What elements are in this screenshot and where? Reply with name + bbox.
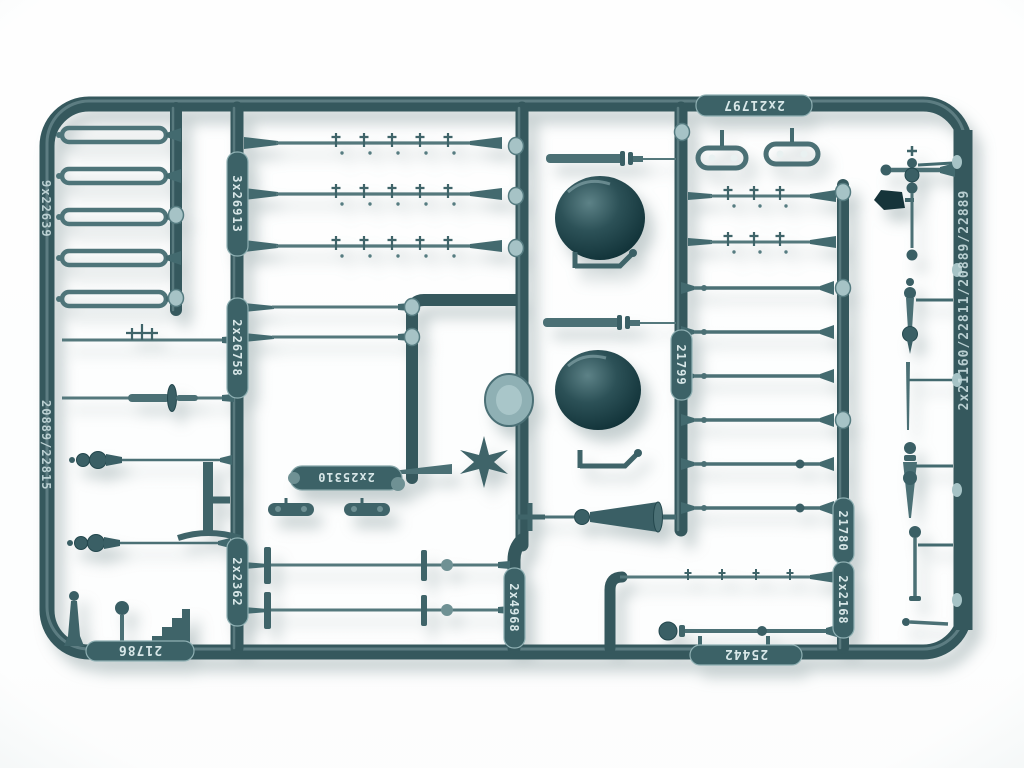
label-bottom-right: 25442 — [690, 645, 802, 665]
clip-part — [344, 498, 390, 516]
label-left-rail-upper: 9x22639 — [39, 180, 53, 238]
part-number-label: 21780 — [836, 510, 850, 551]
finial-part — [67, 535, 230, 552]
lamp-shade-disc — [555, 350, 641, 430]
label-mid-runner: 21799 — [671, 330, 692, 400]
rail-boss — [952, 483, 962, 497]
label-right-rail: 2x21160/22811/20889/22889 — [957, 190, 972, 411]
right-center-parts — [620, 186, 840, 649]
center-parts: 2x25310 — [268, 151, 676, 532]
label-bottom-left: 21786 — [86, 641, 194, 661]
label-top-rail: 2x21797 — [696, 95, 812, 116]
right-column-parts — [902, 146, 953, 626]
part-number-label: 21799 — [674, 344, 688, 385]
crossarm-part — [244, 236, 502, 258]
part-number-label: 25442 — [724, 646, 768, 661]
part-number-label: 2x2362 — [230, 557, 244, 606]
part-number-label: 2x2168 — [836, 575, 850, 624]
ball-stand-part — [115, 601, 129, 647]
loop-parts — [56, 128, 181, 306]
pole-part — [681, 457, 834, 471]
link-part — [766, 128, 818, 164]
runner-bottom-elbow — [610, 577, 622, 648]
loop-part — [56, 169, 181, 183]
loop-part — [56, 292, 181, 306]
part-number-label: 9x22639 — [39, 180, 53, 238]
label-left-runner-lower: 2x2362 — [227, 538, 248, 626]
part-number-label: 2x21160/22811/20889/22889 — [957, 190, 972, 411]
ball-rod-part — [909, 526, 953, 601]
signpost-part — [244, 547, 510, 584]
loop-part — [56, 251, 181, 265]
pole-part — [681, 413, 834, 427]
rail-boss — [952, 593, 962, 607]
label-left-rail-lower: 20889/22815 — [39, 400, 53, 490]
signpost-part — [244, 592, 510, 629]
cylinder-pin-part — [546, 151, 676, 166]
pole-knob — [796, 504, 805, 513]
label-left-runner-upper: 3x26913 — [227, 152, 248, 256]
sprue-svg: 2x25310 — [0, 0, 1024, 768]
clip-part — [268, 498, 314, 516]
rail-boss — [952, 155, 962, 169]
lamp-shade-disc — [555, 176, 645, 260]
short-rod-part — [244, 303, 410, 312]
arrowhead-part — [874, 190, 914, 210]
lamp-finial-part — [905, 146, 953, 261]
crossarm-parts-left — [244, 133, 502, 342]
pole-knob — [796, 460, 805, 469]
crossarm-part — [688, 186, 836, 208]
part-number-label: 2x4968 — [507, 583, 521, 632]
part-number-label: 2x25310 — [317, 470, 375, 484]
small-pin-part — [902, 618, 948, 626]
pole-part — [681, 501, 834, 515]
label-center-runner: 2x4968 — [504, 568, 525, 648]
part-number-label: 21786 — [118, 642, 162, 657]
pole-part — [681, 281, 834, 295]
lamp-finial-part — [903, 278, 954, 354]
label-right-runner-upper: 21780 — [833, 498, 854, 564]
needle-part — [906, 362, 953, 430]
bottom-left-parts — [64, 591, 190, 647]
l-bracket-part — [580, 449, 642, 468]
signpost-parts — [244, 547, 510, 629]
loop-part — [56, 210, 181, 224]
crossarm-part — [244, 184, 502, 206]
star-part — [460, 436, 508, 488]
tick-rod-part — [620, 569, 836, 583]
flange-pole-part — [62, 385, 234, 412]
large-boss-center — [496, 385, 522, 415]
pill-label-part: 2x25310 — [288, 466, 405, 491]
cone-lamp-part — [516, 502, 676, 532]
left-middle-parts — [62, 324, 240, 552]
part-number-label: 3x26913 — [230, 175, 244, 233]
label-right-runner-lower: 2x2168 — [833, 562, 854, 638]
part-number-label: 20889/22815 — [39, 400, 53, 490]
loop-part — [56, 128, 181, 142]
link-part — [698, 130, 746, 168]
part-number-label: 2x26758 — [230, 319, 244, 377]
short-rod-part — [244, 333, 410, 342]
part-number-label: 2x21797 — [723, 97, 785, 112]
cylinder-pin-part — [543, 315, 676, 330]
label-left-runner-mid: 2x26758 — [227, 298, 248, 398]
pole-part — [681, 325, 834, 339]
lamp-finial-part — [903, 442, 953, 518]
crossarm-part — [688, 232, 836, 254]
crossarm-part — [244, 133, 502, 155]
pole-part — [681, 369, 834, 383]
sprue-photo: 2x25310 — [0, 0, 1024, 768]
antenna-rod-part — [62, 324, 234, 344]
